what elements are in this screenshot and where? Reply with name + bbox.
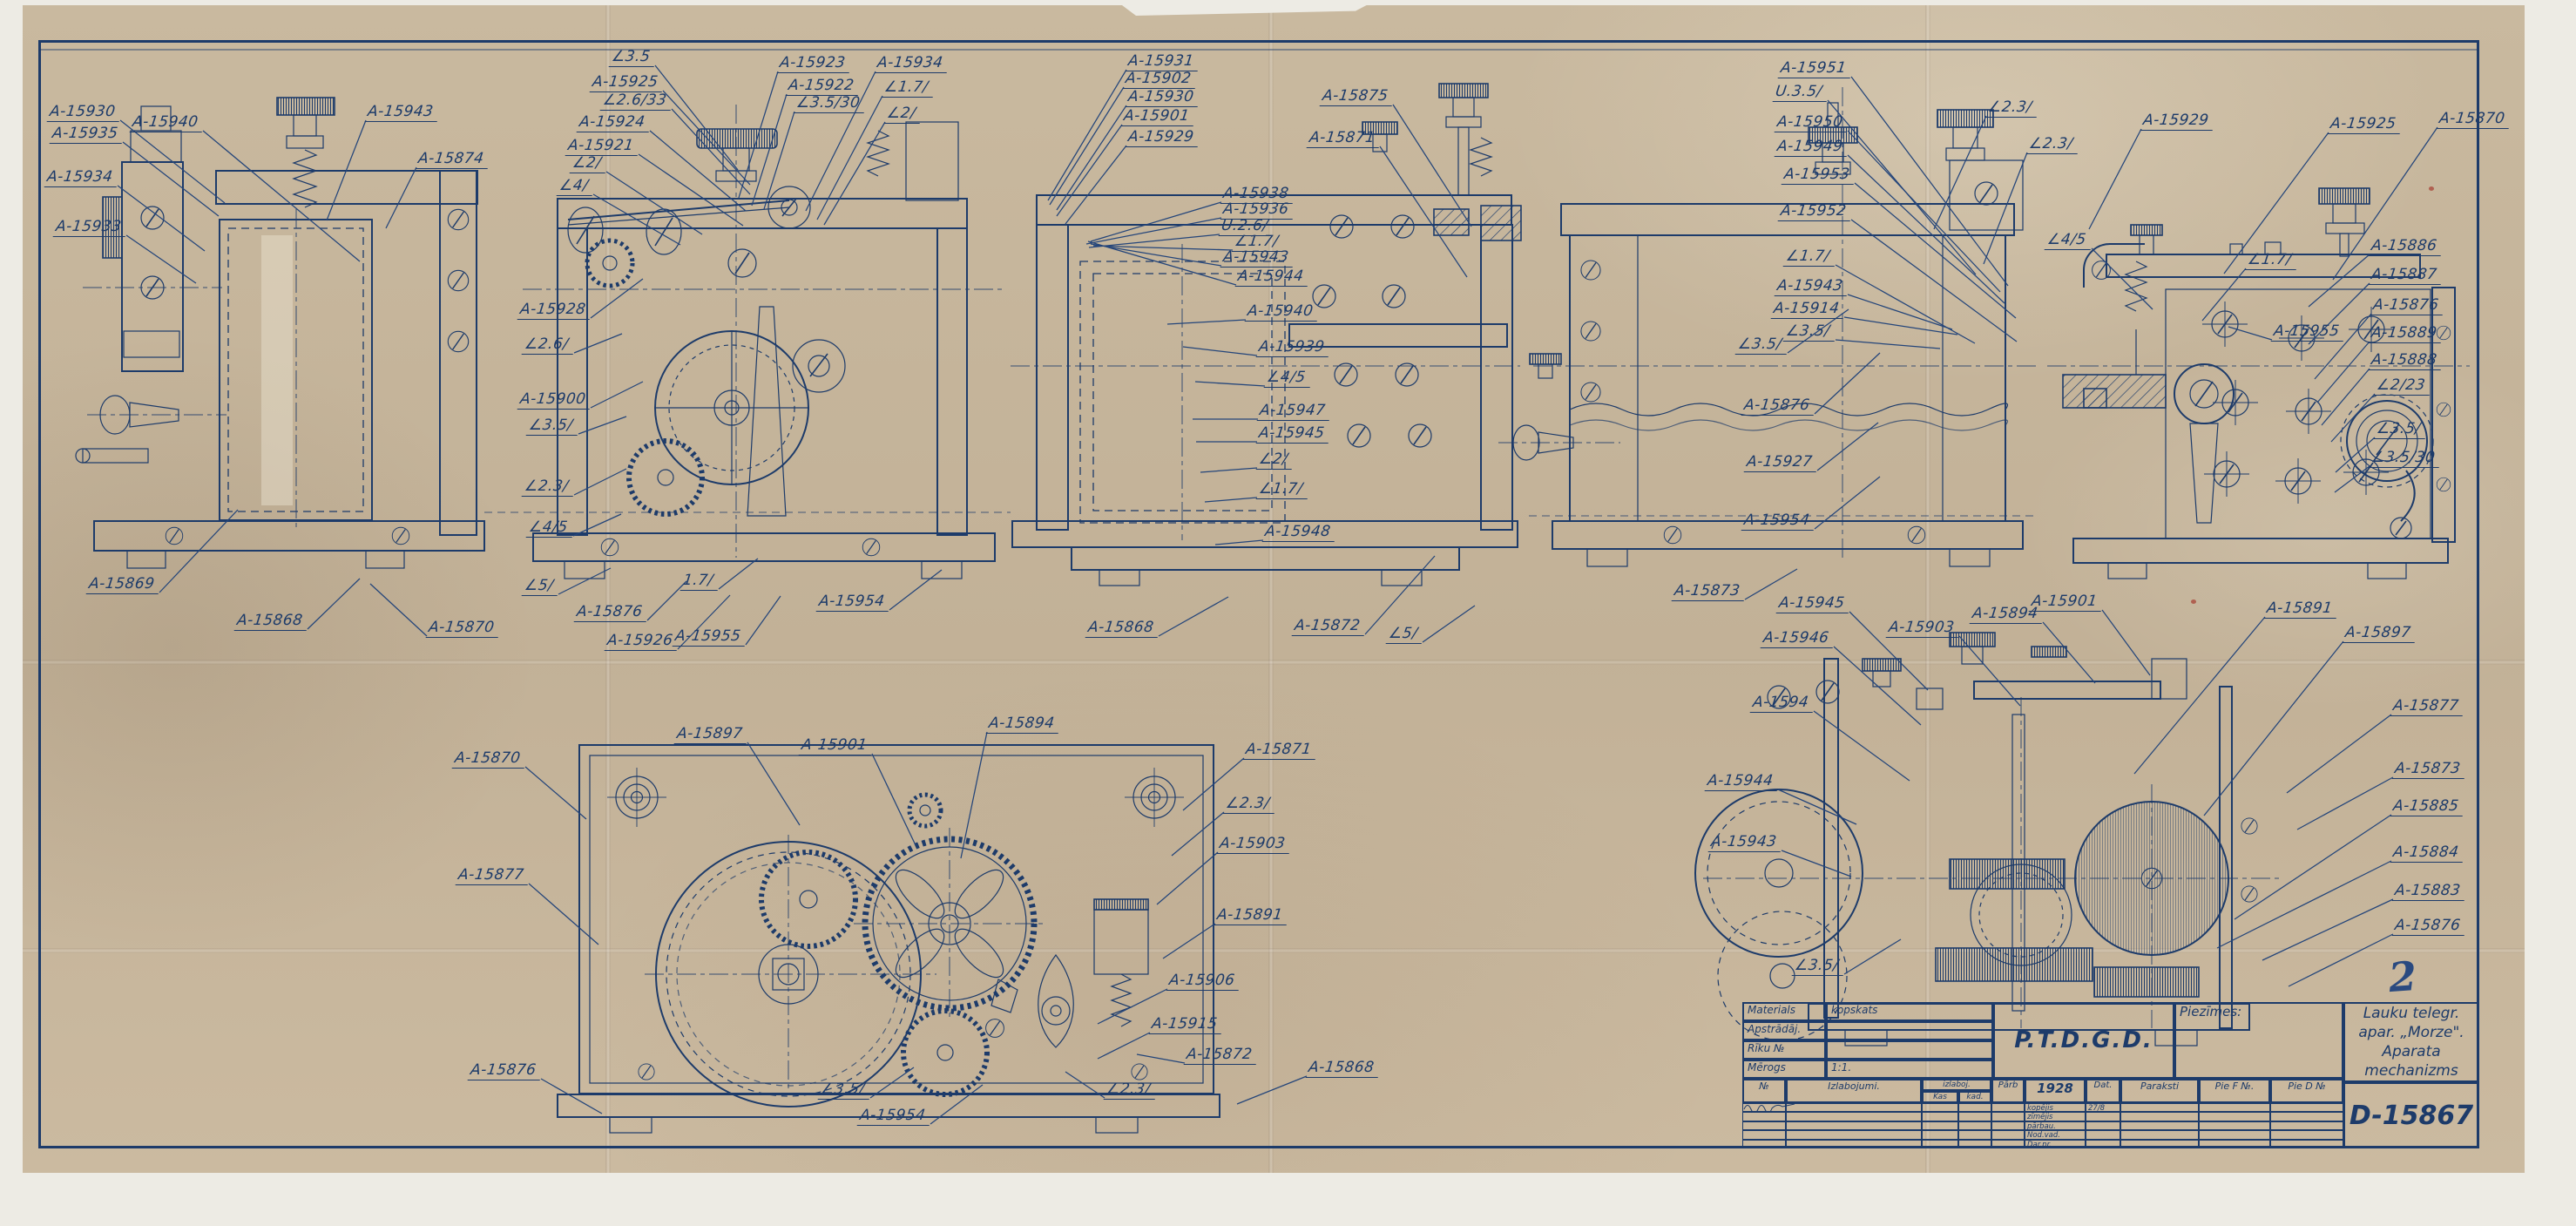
- part-label: ∠2.3/: [522, 478, 575, 497]
- part-label: A-15884: [2390, 843, 2465, 863]
- part-label: A-15883: [2392, 882, 2467, 901]
- part-label: A-15901: [2029, 593, 2104, 612]
- revision-row: kopējis27/8: [1742, 1103, 2343, 1112]
- part-label: A-15876: [574, 603, 649, 622]
- part-label: A-15874: [416, 150, 490, 169]
- part-label: ∠5/: [1386, 625, 1424, 644]
- part-label: A-15901: [1121, 107, 1196, 126]
- revision-cell: [1991, 1103, 2025, 1112]
- part-label: ∠1.7/: [1783, 247, 1836, 267]
- part-label: A-15925: [2328, 115, 2403, 134]
- revision-cell: kopējis: [2025, 1103, 2086, 1112]
- revision-cell: [2120, 1140, 2199, 1148]
- part-label: ∠4/5: [2045, 231, 2093, 250]
- part-label: ∠4/: [557, 177, 595, 196]
- part-label: A-15869: [86, 575, 161, 594]
- revision-cell: [2199, 1140, 2270, 1148]
- rev-col-no: №: [1742, 1079, 1786, 1103]
- part-label: A-15914: [1771, 300, 1846, 319]
- part-label: ∠3.5/30: [794, 94, 867, 113]
- part-label: A-15930: [1126, 88, 1200, 107]
- revision-cell: [2086, 1121, 2120, 1130]
- part-label: A-15955: [673, 627, 747, 647]
- part-label: A-15887: [2369, 266, 2444, 285]
- part-label: ∠3.5/: [1792, 957, 1845, 976]
- revision-cell: [2199, 1103, 2270, 1112]
- part-label: A-15876: [2370, 296, 2445, 315]
- revision-cell: [1991, 1140, 2025, 1148]
- revision-cell: [1991, 1121, 2025, 1130]
- part-label: A-15954: [857, 1107, 932, 1126]
- revision-cell: [1786, 1140, 1922, 1148]
- part-label: A-15901: [799, 736, 874, 755]
- part-label: A-15946: [1761, 629, 1836, 648]
- part-label: A-15935: [50, 125, 125, 144]
- part-label: ∠2.3/: [1985, 98, 2038, 118]
- part-label: A-15943: [1220, 248, 1295, 268]
- drawing-number: D-15867: [2343, 1082, 2479, 1148]
- revision-cell: 27/8: [2086, 1103, 2120, 1112]
- part-label: A-15871: [1243, 741, 1318, 760]
- part-label: A-15897: [2343, 624, 2417, 643]
- part-label: A-15868: [1306, 1059, 1381, 1078]
- revision-cell: Dar.pr.: [2025, 1140, 2086, 1148]
- part-label: A-15868: [234, 612, 309, 631]
- part-label: A-15944: [1705, 772, 1780, 791]
- part-label: A-15927: [1744, 453, 1819, 472]
- part-label: ∠2.6/33: [600, 91, 673, 111]
- part-label: A-15877: [2390, 697, 2465, 716]
- part-label: ∠1.7/: [2245, 251, 2298, 270]
- part-label: A-15922: [786, 77, 861, 96]
- part-label: A-1594: [1750, 694, 1815, 713]
- part-label: A-15891: [1214, 906, 1289, 925]
- part-label: A-15940: [130, 113, 205, 132]
- revision-cell: [1958, 1130, 1991, 1139]
- part-label: ∠3.5/: [526, 417, 579, 436]
- part-label: A-15923: [777, 54, 852, 73]
- revision-cell: [1786, 1112, 1922, 1121]
- revision-cell: [1991, 1112, 2025, 1121]
- notes-cell: Piezīmes:: [2174, 1002, 2343, 1079]
- part-label: A-15906: [1166, 972, 1241, 991]
- revision-cell: [1922, 1112, 1958, 1121]
- scan-margin-right: [2525, 0, 2576, 1226]
- part-label: A-15902: [1123, 70, 1198, 89]
- part-label: A-15891: [2264, 599, 2339, 619]
- part-label: A-15900: [517, 390, 592, 410]
- revision-cell: [2086, 1130, 2120, 1139]
- part-label: A-15889: [2369, 324, 2444, 343]
- part-label: A-15924: [577, 113, 652, 132]
- revision-cell: [2086, 1112, 2120, 1121]
- revision-cell: [2120, 1112, 2199, 1121]
- part-label: A-15943: [365, 103, 440, 122]
- part-label: A-15876: [468, 1061, 543, 1080]
- revision-cell: [2086, 1140, 2120, 1148]
- drawing-title: Lauku telegr. apar. „Morze". Aparata mec…: [2343, 1002, 2479, 1082]
- materials-label: Materials: [1742, 1002, 1826, 1021]
- revision-cell: [1958, 1121, 1991, 1130]
- part-label: ∠5/: [522, 577, 560, 596]
- rev-col-pied: Pie D №: [2270, 1079, 2343, 1103]
- riku-label: Rīku №: [1742, 1040, 1826, 1060]
- revision-rows: kopējis27/8zīmējispārbau.Nod.vad.Dar.pr.: [1742, 1103, 2343, 1148]
- part-label: ∠1.7/: [882, 78, 935, 98]
- revision-cell: [1786, 1103, 1922, 1112]
- part-label: A-15947: [1257, 402, 1332, 421]
- rev-col-desc: Izlabojumi.: [1786, 1079, 1922, 1103]
- merogs-value: 1:1.: [1826, 1060, 1993, 1079]
- revision-cell: zīmējis: [2025, 1112, 2086, 1121]
- blueprint-sheet: A-15930A-15935A-15934A-15933A-15940A-159…: [0, 0, 2576, 1226]
- part-label: ∠3.5/: [1735, 335, 1788, 355]
- part-label: A-15934: [44, 168, 119, 187]
- part-label: A-15948: [1262, 523, 1337, 542]
- part-label: A-15915: [1149, 1015, 1224, 1034]
- part-label: A-15903: [1217, 835, 1292, 854]
- rev-col-sign: Paraksti: [2120, 1079, 2199, 1103]
- part-label: A-15928: [517, 301, 592, 320]
- scan-margin-top: [0, 0, 2576, 5]
- part-label: A-15949: [1775, 138, 1849, 157]
- rev-col-fix: izlaboj.: [1922, 1079, 1991, 1091]
- revision-row: Nod.vad.: [1742, 1130, 2343, 1139]
- revision-cell: [2270, 1130, 2343, 1139]
- part-label: A-15872: [1292, 617, 1367, 636]
- revision-cell: [2270, 1140, 2343, 1148]
- part-label: A-15940: [1245, 302, 1320, 322]
- revision-cell: [1991, 1130, 2025, 1139]
- materials-value: kopskats: [1826, 1002, 1993, 1021]
- revision-cell: [1742, 1112, 1786, 1121]
- part-label: A-15876: [2392, 917, 2467, 936]
- part-label: A-15929: [1126, 128, 1200, 147]
- part-label: A-15954: [816, 593, 891, 612]
- part-label: ∠2/23: [2374, 376, 2432, 396]
- revision-cell: [2199, 1130, 2270, 1139]
- part-label: A-15886: [2369, 237, 2444, 256]
- part-label: ∠4/5: [526, 518, 574, 538]
- scan-margin-bottom: [0, 1173, 2576, 1226]
- part-label: A-15954: [1741, 511, 1816, 531]
- revision-row: Dar.pr.: [1742, 1140, 2343, 1148]
- apstradaj-label: Apstrādāj.: [1742, 1021, 1826, 1040]
- part-label: A-15933: [53, 218, 128, 237]
- revision-cell: [1922, 1103, 1958, 1112]
- part-label: ∠2/: [1256, 450, 1295, 470]
- revision-cell: [1742, 1140, 1786, 1148]
- part-label: A-15873: [1672, 582, 1747, 601]
- part-label: ∠2.6/: [522, 335, 575, 355]
- part-label: A-15925: [590, 73, 665, 92]
- revision-cell: [2199, 1121, 2270, 1130]
- revision-cell: [1958, 1103, 1991, 1112]
- part-label: A-15950: [1775, 113, 1849, 132]
- part-label: A-15876: [1741, 396, 1816, 416]
- part-label: A-15921: [565, 137, 640, 156]
- part-label: A-15897: [674, 725, 749, 744]
- part-label: ∠3.5/: [1783, 322, 1836, 342]
- part-label: A-15888: [2369, 351, 2444, 370]
- part-label: A-15943: [1775, 277, 1849, 296]
- rev-col-who: Kas: [1922, 1091, 1958, 1103]
- part-label: A-15952: [1778, 202, 1853, 221]
- part-label: A-15903: [1886, 619, 1961, 638]
- part-label: A-15944: [1235, 268, 1310, 287]
- part-label: ∠4/5: [1264, 369, 1312, 388]
- revision-cell: [1786, 1121, 1922, 1130]
- part-label: A-15875: [1320, 87, 1395, 106]
- part-label: A-15930: [47, 103, 122, 122]
- revision-cell: pārbau.: [2025, 1121, 2086, 1130]
- part-label: A-15868: [1085, 619, 1160, 638]
- revision-cell: [2120, 1121, 2199, 1130]
- revision-cell: [2120, 1103, 2199, 1112]
- revision-row: pārbau.: [1742, 1121, 2343, 1130]
- revision-cell: [1958, 1112, 1991, 1121]
- revision-cell: [2120, 1130, 2199, 1139]
- rev-col-dat: Dat.: [2086, 1079, 2120, 1103]
- part-label: A-15934: [875, 54, 950, 73]
- part-label: A-15870: [2437, 110, 2512, 129]
- part-label: A-15931: [1126, 52, 1200, 71]
- revision-cell: [2199, 1112, 2270, 1121]
- part-label: U.3.5/: [1773, 83, 1829, 102]
- revision-cell: [1786, 1130, 1922, 1139]
- merogs-label: Mērogs: [1742, 1060, 1826, 1079]
- part-label: A-15945: [1256, 424, 1331, 444]
- part-label: A-15926: [605, 632, 679, 651]
- part-label: A-15943: [1708, 833, 1783, 852]
- part-label: ∠2.3/: [1223, 795, 1276, 814]
- revision-cell: [1922, 1121, 1958, 1130]
- part-label: ∠2.3/: [1104, 1080, 1157, 1100]
- part-label: A-15929: [2140, 112, 2215, 131]
- part-label: 1.7/: [680, 572, 720, 591]
- revision-cell: Nod.vad.: [2025, 1130, 2086, 1139]
- part-label: ∠1.7/: [1256, 480, 1309, 499]
- part-label: A-15870: [452, 749, 527, 769]
- page-number-note: 2: [2387, 952, 2418, 1001]
- part-label: A-15873: [2392, 760, 2467, 779]
- part-label: A-15955: [2271, 322, 2346, 342]
- part-label: A-15945: [1776, 594, 1851, 613]
- scan-margin-left: [0, 0, 23, 1226]
- part-label: A-15951: [1778, 59, 1853, 78]
- rev-col-year: 1928: [2025, 1079, 2086, 1103]
- revision-cell: [1922, 1130, 1958, 1139]
- revision-cell: [2270, 1121, 2343, 1130]
- part-label: A-15872: [1184, 1046, 1259, 1065]
- part-label: ∠2/: [884, 105, 923, 124]
- organization: P.T.D.G.D.: [1993, 1002, 2174, 1079]
- revision-row: zīmējis: [1742, 1112, 2343, 1121]
- rev-col-when: kad.: [1958, 1091, 1991, 1103]
- part-label: A-15885: [2390, 797, 2465, 816]
- part-label: A-15871: [1307, 129, 1382, 148]
- title-block: Materials kopskats Apstrādāj. Rīku № Mēr…: [1742, 1002, 2479, 1148]
- revision-cell: [1742, 1121, 1786, 1130]
- part-label: ∠3.5/: [2374, 420, 2427, 439]
- revision-cell: [1742, 1130, 1786, 1139]
- part-label: A-15953: [1782, 166, 1856, 185]
- rev-col-pief: Pie F №.: [2199, 1079, 2270, 1103]
- revision-cell: [1958, 1140, 1991, 1148]
- rev-col-parb: Pārb: [1991, 1079, 2025, 1103]
- part-label: A-15870: [426, 619, 501, 638]
- part-label: ∠3.5/30: [2369, 449, 2442, 468]
- part-label: ∠2/: [570, 154, 608, 173]
- revision-cell: [1922, 1140, 1958, 1148]
- part-label: A-15894: [986, 715, 1061, 734]
- apstradaj-value: [1826, 1021, 1993, 1040]
- part-label: ∠2.3/: [2026, 135, 2079, 154]
- part-label: A-15939: [1256, 338, 1331, 357]
- part-label: ∠3.5: [609, 48, 657, 67]
- part-label: ∠3.5/: [818, 1080, 871, 1100]
- revision-cell: [2270, 1112, 2343, 1121]
- riku-value: [1826, 1040, 1993, 1060]
- revision-cell: [2270, 1103, 2343, 1112]
- part-label: A-15877: [456, 866, 531, 885]
